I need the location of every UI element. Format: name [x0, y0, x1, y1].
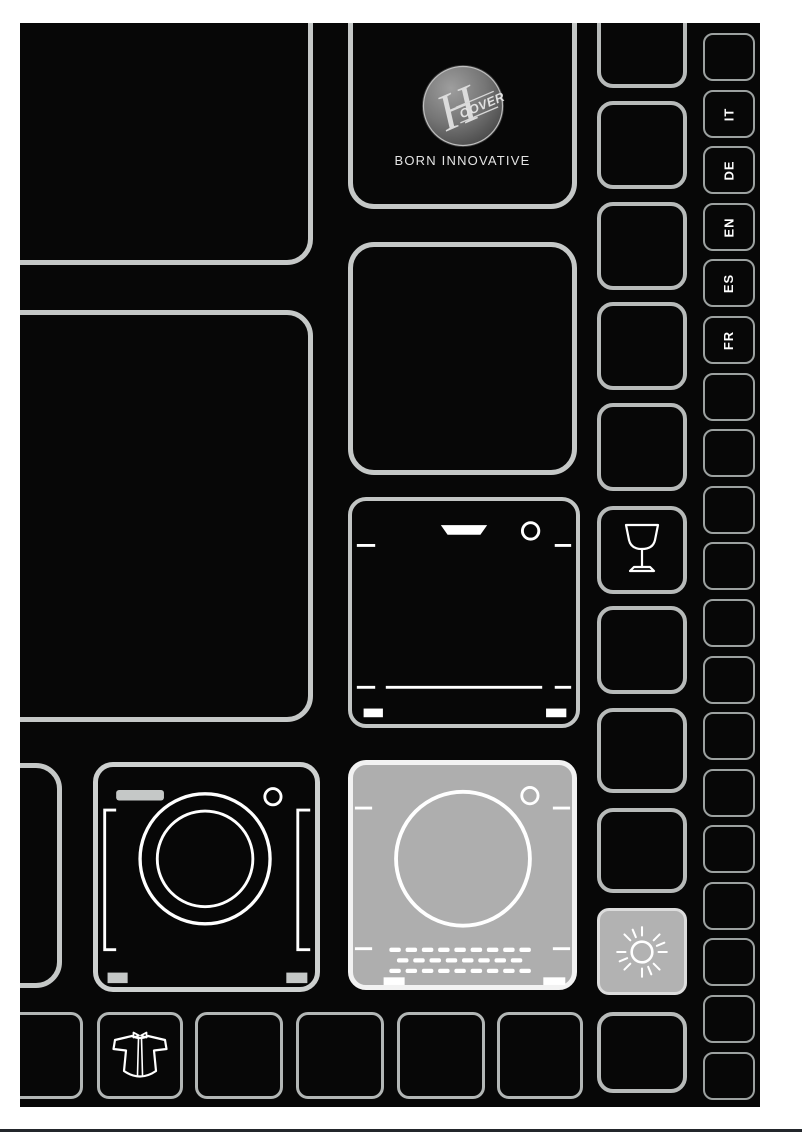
grid-cell — [703, 825, 755, 873]
grid-cell — [703, 712, 755, 760]
grid-cell — [597, 808, 687, 893]
grid-cell — [195, 1012, 283, 1099]
sun-cell — [597, 908, 687, 995]
language-label: IT — [722, 107, 737, 121]
grid-cell — [597, 606, 687, 694]
manual-cover-page: H OOVER BORN INNOVATIVE — [0, 0, 802, 1136]
cover-black-panel: H OOVER BORN INNOVATIVE — [20, 23, 760, 1107]
grid-cell — [597, 23, 687, 88]
washing-machine-icon — [98, 767, 315, 987]
tumble-dryer-icon — [353, 765, 572, 985]
grid-cell — [703, 995, 755, 1043]
grid-cell — [703, 429, 755, 477]
grid-cell — [703, 1052, 755, 1100]
grid-cell — [20, 763, 62, 988]
grid-cell — [296, 1012, 384, 1099]
shirt-icon — [108, 1024, 172, 1088]
grid-cell — [703, 882, 755, 930]
grid-cell — [597, 708, 687, 793]
shirt-cell — [97, 1012, 183, 1099]
grid-cell — [597, 202, 687, 290]
language-cell-it: IT — [703, 90, 755, 138]
language-cell-en: EN — [703, 203, 755, 251]
page-bottom-rule — [0, 1129, 802, 1132]
language-cell-fr: FR — [703, 316, 755, 364]
wine-glass-cell — [597, 506, 687, 594]
grid-cell — [703, 373, 755, 421]
language-label: FR — [722, 330, 737, 349]
language-cell-es: ES — [703, 259, 755, 307]
language-label: EN — [722, 217, 737, 237]
washer-cell — [93, 762, 320, 992]
grid-cell — [703, 542, 755, 590]
grid-cell — [20, 1012, 83, 1099]
dryer-cell — [348, 760, 577, 990]
hoover-logo: H OOVER — [421, 64, 505, 148]
grid-cell — [20, 23, 313, 265]
grid-cell — [703, 938, 755, 986]
grid-cell — [597, 101, 687, 189]
grid-cell — [703, 486, 755, 534]
grid-cell — [597, 302, 687, 390]
grid-cell — [497, 1012, 583, 1099]
brand-cell: H OOVER BORN INNOVATIVE — [348, 23, 577, 209]
dishwasher-cell — [348, 497, 580, 728]
dishwasher-icon — [352, 501, 576, 724]
grid-cell — [348, 242, 577, 475]
language-label: DE — [722, 160, 737, 180]
brand-tagline: BORN INNOVATIVE — [353, 153, 572, 168]
grid-cell — [703, 656, 755, 704]
grid-cell — [703, 599, 755, 647]
sun-icon — [611, 921, 673, 983]
grid-cell — [397, 1012, 485, 1099]
grid-cell — [703, 769, 755, 817]
grid-cell — [597, 403, 687, 491]
grid-cell — [20, 310, 313, 722]
grid-cell — [597, 1012, 687, 1093]
language-cell-de: DE — [703, 146, 755, 194]
wine-glass-icon — [622, 523, 662, 577]
language-label: ES — [722, 273, 737, 292]
grid-cell — [703, 33, 755, 81]
